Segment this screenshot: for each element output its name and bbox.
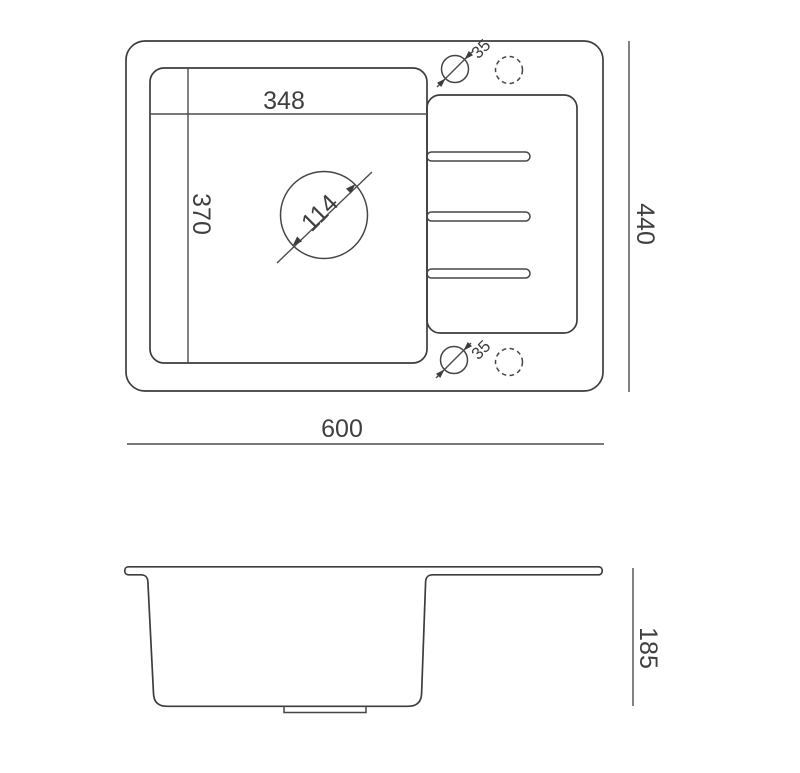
dim-label-bowl-width: 348 (263, 87, 305, 115)
top-view: 114 35 35 348 370 600 (126, 36, 659, 444)
drainboard-outline (427, 95, 577, 333)
drain-diameter-label: 114 (296, 189, 344, 237)
faucet-hole-top-label: 35 (468, 36, 495, 63)
dim-label-overall-width: 600 (321, 415, 363, 443)
dim-label-bowl-depth: 370 (187, 193, 215, 235)
drain-diameter-arrow-down (290, 236, 302, 248)
faucet-hole-top-optional-dashed (496, 57, 523, 84)
drain-flange-outline (284, 706, 366, 712)
sink-technical-drawing: 114 35 35 348 370 600 (0, 0, 800, 773)
faucet-hole-bottom-label: 35 (468, 337, 495, 364)
drainboard-groove-2 (427, 212, 530, 221)
side-view: 185 (125, 567, 662, 713)
faucet-hole-bottom-optional-dashed (496, 349, 523, 376)
dim-label-overall-height: 185 (634, 627, 662, 669)
dim-label-overall-depth: 440 (631, 203, 659, 245)
drainboard-groove-3 (427, 269, 530, 278)
sink-technical-drawing-page: 114 35 35 348 370 600 (0, 0, 800, 773)
side-profile-outline (125, 567, 603, 707)
drainboard-groove-1 (427, 152, 530, 161)
